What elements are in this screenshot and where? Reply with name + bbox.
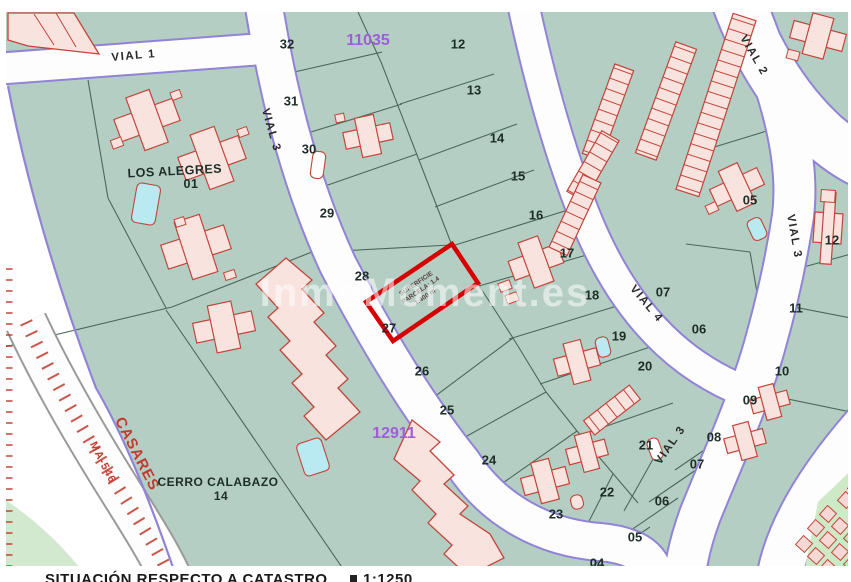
parcel-label: 10 (775, 364, 789, 379)
parcel-label: 05 (628, 530, 642, 545)
zone-number-cerro-calabazo: 14 (214, 489, 228, 503)
scale-bullet-icon (350, 575, 357, 582)
parcel-label: 22 (600, 485, 614, 500)
footer-caption: SITUACIÓN RESPECTO A CATASTRO (45, 570, 328, 582)
footer-scale: 1:1250 (363, 571, 413, 582)
parcel-label: 24 (482, 453, 497, 468)
parcel-label: 21 (639, 438, 653, 453)
parcel-label: 11 (789, 301, 803, 316)
building-annex (821, 190, 836, 203)
parcel-label: 20 (638, 359, 652, 374)
parcel-label: 05 (743, 193, 757, 208)
cadastral-map-screenshot: SUPERFICIE PARCELA: 1.4 1.400 m 32313029… (0, 0, 851, 582)
parcel-label: 19 (612, 329, 626, 344)
parcel-label: 08 (707, 430, 721, 445)
zone-number-los-alegres: 01 (184, 177, 199, 191)
cadastral-map: SUPERFICIE PARCELA: 1.4 1.400 m 32313029… (0, 0, 851, 582)
building-annex (335, 113, 345, 123)
cadastral-ref-label: 12911 (372, 425, 416, 442)
parcel-label: 29 (320, 206, 334, 221)
watermark-text: InmoMoment.es (260, 271, 590, 315)
parcel-label: 14 (490, 131, 505, 146)
parcel-label: 23 (549, 507, 563, 522)
parcel-label: 09 (743, 393, 757, 408)
parcel-label: 17 (560, 246, 574, 261)
parcel-label: 06 (692, 322, 706, 337)
zone-name-cerro-calabazo: CERRO CALABAZO (158, 475, 279, 489)
parcel-label: 12 (825, 233, 839, 248)
parcel-label: 27 (382, 321, 396, 336)
parcel-label: 12 (451, 37, 465, 52)
frame-top (0, 0, 851, 12)
parcel-label: 25 (440, 403, 454, 418)
parcel-label: 30 (302, 142, 316, 157)
parcel-label: 07 (690, 457, 704, 472)
parcel-label: 26 (415, 364, 429, 379)
parcel-label: 15 (511, 169, 525, 184)
parcel-label: 32 (280, 37, 294, 52)
parcel-label: 07 (656, 285, 670, 300)
parcel-label: 06 (655, 494, 669, 509)
parcel-label: 31 (284, 94, 298, 109)
cadastral-ref-label: 11035 (346, 32, 390, 49)
parcel-label: 16 (529, 208, 543, 223)
parcel-label: 13 (467, 83, 481, 98)
